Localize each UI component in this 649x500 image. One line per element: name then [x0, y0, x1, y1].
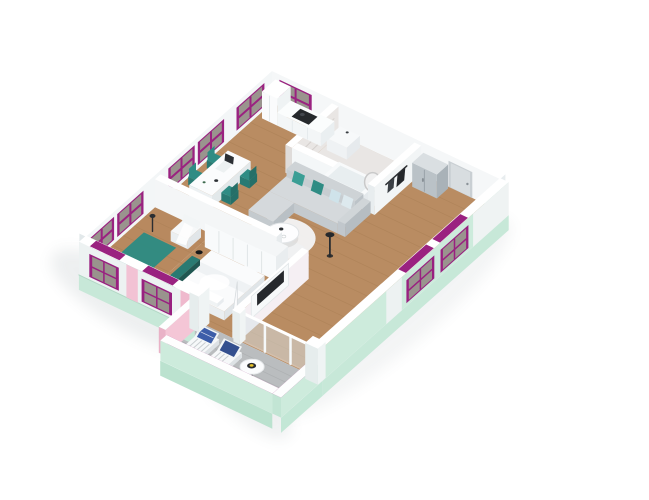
pink-accent-panel [126, 264, 137, 302]
floorplan-3d-render [0, 0, 649, 500]
coffee-table-decor [279, 228, 283, 231]
door-knob [466, 183, 468, 185]
lemon [250, 364, 254, 367]
corner-pillar [305, 336, 325, 385]
floor-lamp-shade [150, 214, 156, 218]
floor-lamp-base [327, 254, 333, 258]
wardrobe-handle [422, 178, 424, 182]
coffee-table-cup [282, 235, 286, 238]
table-decor [214, 179, 218, 182]
faucet [346, 131, 349, 133]
table-plant [203, 181, 206, 183]
cooking-pot [300, 113, 305, 116]
black-cat [196, 250, 203, 254]
floor-lamp-shade [325, 232, 334, 237]
corner-pillar [189, 283, 209, 333]
apartment-3d-floorplan-page [0, 0, 649, 500]
corner-pillar [233, 306, 245, 345]
